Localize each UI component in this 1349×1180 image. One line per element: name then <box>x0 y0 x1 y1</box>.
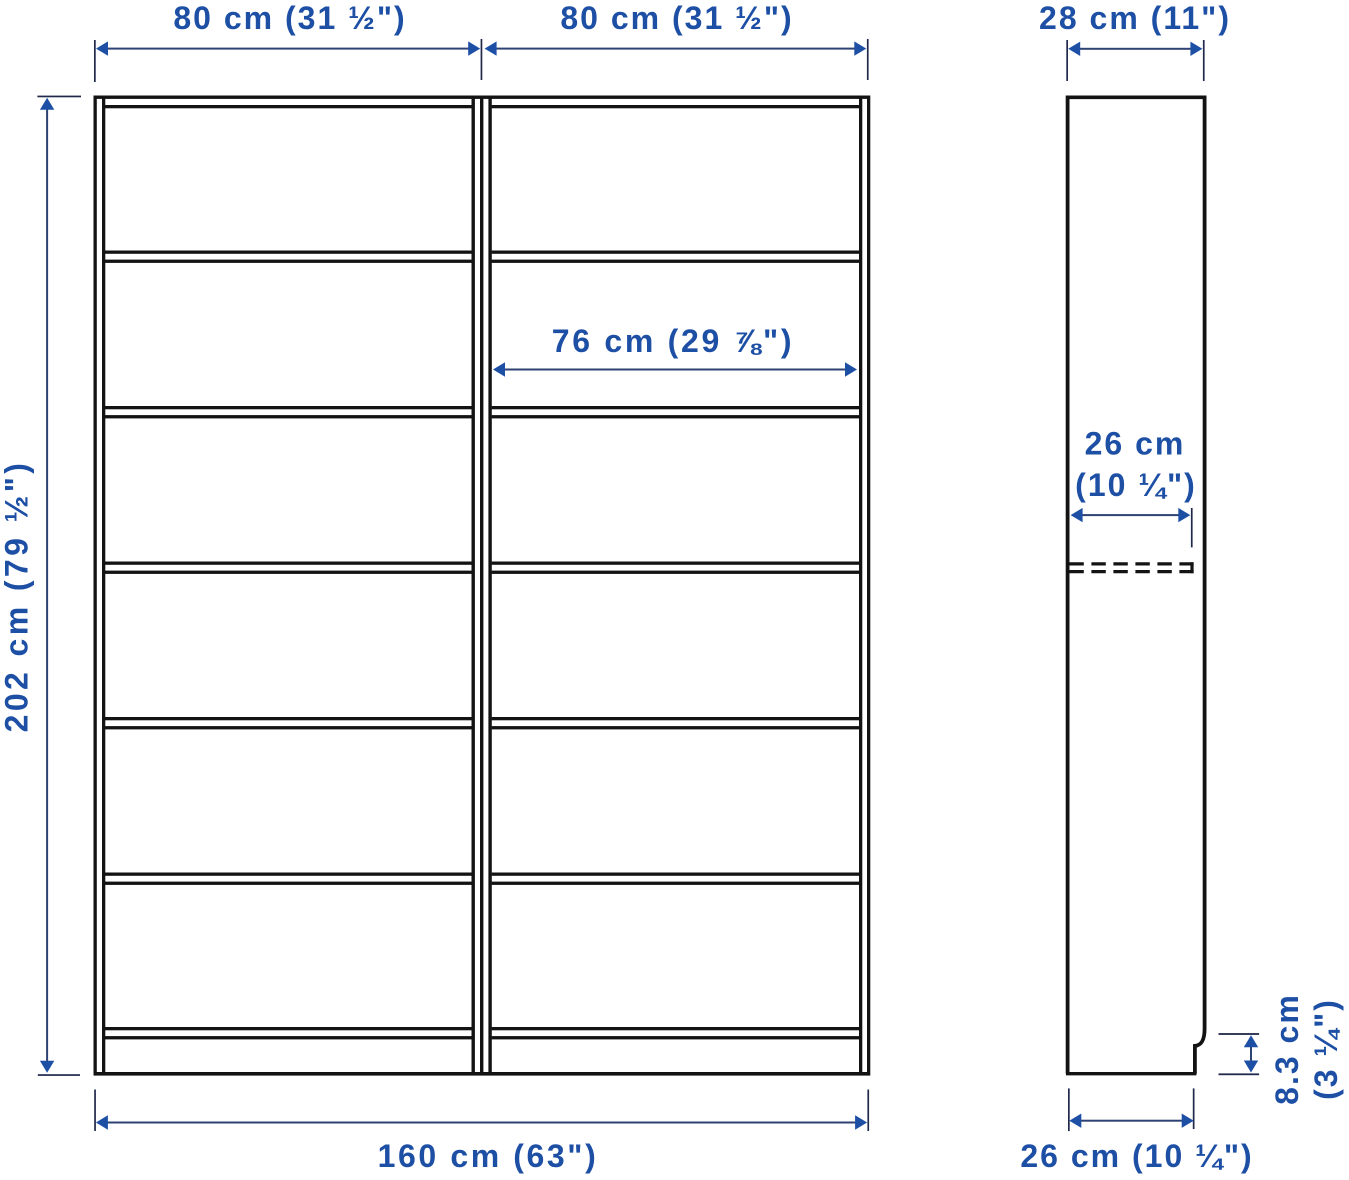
svg-text:160 cm (63"): 160 cm (63") <box>378 1138 599 1174</box>
svg-text:76 cm (29 ⅞"): 76 cm (29 ⅞") <box>552 323 794 359</box>
svg-text:28 cm (11"): 28 cm (11") <box>1039 0 1231 36</box>
svg-text:8.3 cm: 8.3 cm <box>1269 993 1305 1105</box>
svg-text:80 cm (31 ½"): 80 cm (31 ½") <box>560 0 793 36</box>
svg-text:(10 ¼"): (10 ¼") <box>1075 467 1197 503</box>
svg-text:202 cm (79 ½"): 202 cm (79 ½") <box>0 460 35 733</box>
svg-text:(3 ¼"): (3 ¼") <box>1308 998 1344 1100</box>
svg-text:26 cm: 26 cm <box>1085 426 1186 462</box>
svg-text:80 cm (31 ½"): 80 cm (31 ½") <box>173 0 406 36</box>
svg-text:26 cm (10 ¼"): 26 cm (10 ¼") <box>1020 1138 1253 1174</box>
